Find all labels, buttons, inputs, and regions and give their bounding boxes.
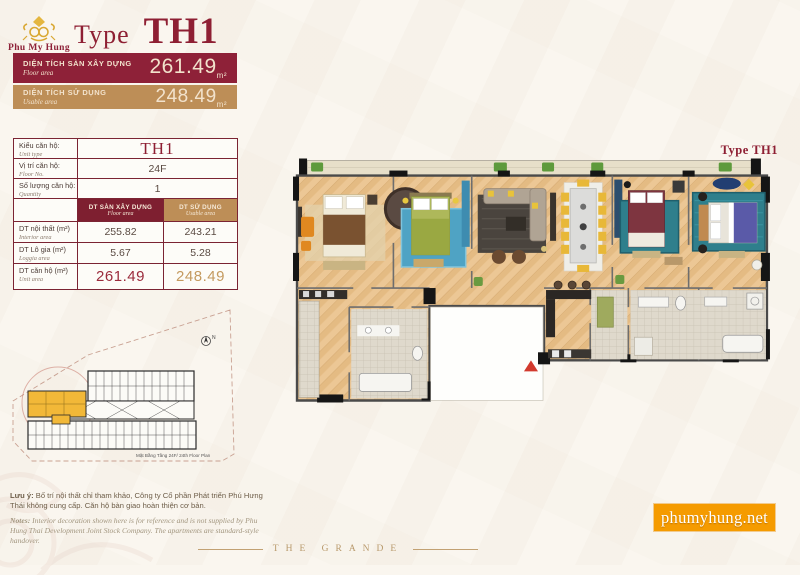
title-type-value: TH1 [144,10,219,53]
footer-rule-left [198,549,263,550]
lotus-emblem-icon [19,14,59,44]
unit-floor-value: 261.49 [78,264,163,289]
col-header-floor-area: DT SÀN XÂY DỰNG Floor area [78,199,163,221]
note-vietnamese: Lưu ý: Bố trí nội thất chỉ tham khảo, Cô… [10,491,268,512]
table-row-quantity: Số lượng căn hộ: Quantity 1 [14,179,237,199]
svg-text:N: N [212,335,216,341]
interior-usable-value: 243.21 [163,222,237,242]
unit-type-value: TH1 [78,139,237,159]
note-english: Notes: Interior decoration shown here is… [10,516,268,547]
website-url[interactable]: phumyhung.net [661,508,768,528]
floor-no-value: 24F [78,159,237,178]
page-title: Type TH1 [74,10,219,53]
site-plan-caption: Mặt Bằng Tầng 24F/ 24th Floor Plan [136,452,211,458]
usable-area-label: DIỆN TÍCH SỬ DỤNG Usable area [23,88,106,106]
table-row-floor-no: Vị trí căn hộ: Floor No. 24F [14,159,237,179]
table-row-loggia-area: DT Lô gia (m²) Loggia area 5.67 5.28 [14,243,237,264]
project-name: THE GRANDE [273,544,403,554]
page-header: Phu My Hung Type TH1 [10,5,219,53]
usable-area-banner: DIỆN TÍCH SỬ DỤNG Usable area 248.49m² [13,85,237,109]
unit-spec-table: Kiểu căn hộ: Unit type TH1 Vị trí căn hộ… [13,138,238,290]
usable-area-value: 248.49m² [156,86,227,109]
title-type-word: Type [74,20,130,50]
loggia-floor-value: 5.67 [78,243,163,263]
col-header-usable-area: DT SỬ DỤNG Usable area [163,199,237,221]
dining-room [561,180,606,272]
loggia-usable-value: 5.28 [163,243,237,263]
quantity-value: 1 [78,179,237,198]
floor-area-label: DIỆN TÍCH SÀN XÂY DỰNG Floor area [23,59,132,77]
table-row-interior-area: DT nội thất (m²) Interior area 255.82 24… [14,222,237,243]
table-row-unit-type: Kiểu căn hộ: Unit type TH1 [14,139,237,159]
floor-plan-corner-label: Type TH1 [658,143,778,158]
floor-plan [293,156,782,408]
footer-rule-right [413,549,478,550]
floor-area-banner: DIỆN TÍCH SÀN XÂY DỰNG Floor area 261.49… [13,53,237,83]
notes-block: Lưu ý: Bố trí nội thất chỉ tham khảo, Cô… [10,491,268,550]
website-link[interactable]: phumyhung.net [654,504,775,531]
bathrooms-right [591,290,766,359]
site-key-plan: N Mặt Bằng Tầng 24F/ 24th Floor Plan [8,303,243,468]
table-header-row: DT SÀN XÂY DỰNG Floor area DT SỬ DỤNG Us… [14,199,237,222]
bathroom-left [351,309,427,398]
unit-usable-value: 248.49 [163,264,237,289]
brand-logo: Phu My Hung [10,14,68,53]
interior-floor-value: 255.82 [78,222,163,242]
compass-icon: N [202,335,217,346]
void-area [431,307,543,400]
project-footer: THE GRANDE [198,544,478,554]
table-row-unit-area: DT căn hộ (m²) Unit area 261.49 248.49 [14,264,237,289]
floor-area-value: 261.49m² [149,55,227,80]
living-room [478,189,556,264]
brand-name: Phu My Hung [8,43,70,53]
